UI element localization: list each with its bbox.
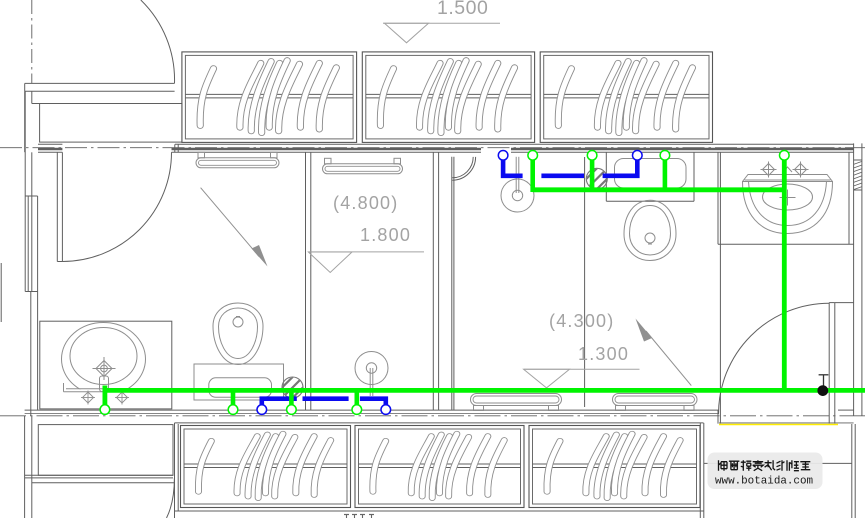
svg-text:(4.800): (4.800) <box>333 193 398 213</box>
svg-text:(4.300): (4.300) <box>549 311 614 331</box>
svg-text:1.300: 1.300 <box>578 344 629 364</box>
svg-text:1.500: 1.500 <box>437 0 488 19</box>
svg-text:1.800: 1.800 <box>360 225 411 245</box>
svg-text:www.botaida.com: www.botaida.com <box>715 476 813 488</box>
